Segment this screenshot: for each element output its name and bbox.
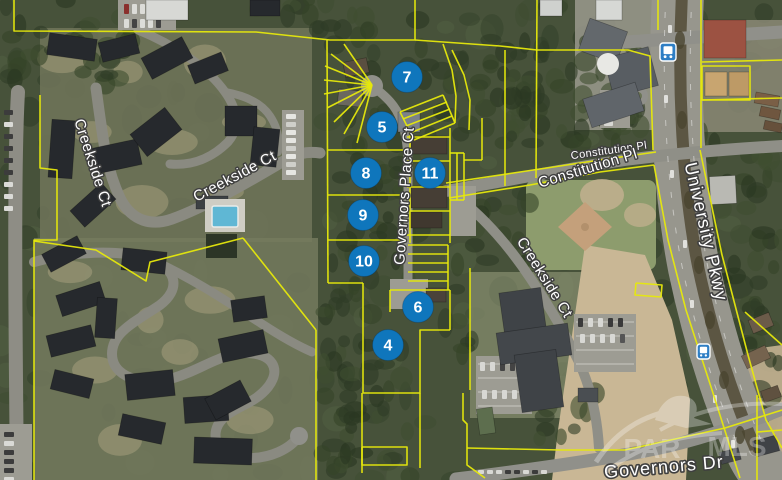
marker-number: 5 xyxy=(378,120,387,137)
map-viewport[interactable]: Creekside CtCreekside CtCreekside CtGove… xyxy=(0,0,782,480)
marker-number: 8 xyxy=(362,166,371,183)
listing-marker-6[interactable]: 6 xyxy=(403,292,434,323)
watermark-text-left: PAR xyxy=(623,433,680,464)
listing-marker-11[interactable]: 11 xyxy=(415,158,446,189)
listing-marker-10[interactable]: 10 xyxy=(349,246,380,277)
watermark-text-right: MLS xyxy=(707,431,766,462)
listing-marker-9[interactable]: 9 xyxy=(348,200,379,231)
listing-marker-4[interactable]: 4 xyxy=(373,330,404,361)
listing-marker-8[interactable]: 8 xyxy=(351,158,382,189)
marker-number: 4 xyxy=(384,338,393,355)
listing-marker-5[interactable]: 5 xyxy=(367,112,398,143)
map-canvas[interactable]: Creekside CtCreekside CtCreekside CtGove… xyxy=(0,0,782,480)
marker-number: 9 xyxy=(359,208,368,225)
bus-stop-icon xyxy=(660,43,676,61)
bus-stop-icon xyxy=(697,344,710,359)
marker-number: 10 xyxy=(355,254,373,271)
marker-number: 11 xyxy=(422,166,439,183)
listing-marker-7[interactable]: 7 xyxy=(392,62,423,93)
marker-number: 7 xyxy=(403,70,412,87)
marker-number: 6 xyxy=(414,300,423,317)
